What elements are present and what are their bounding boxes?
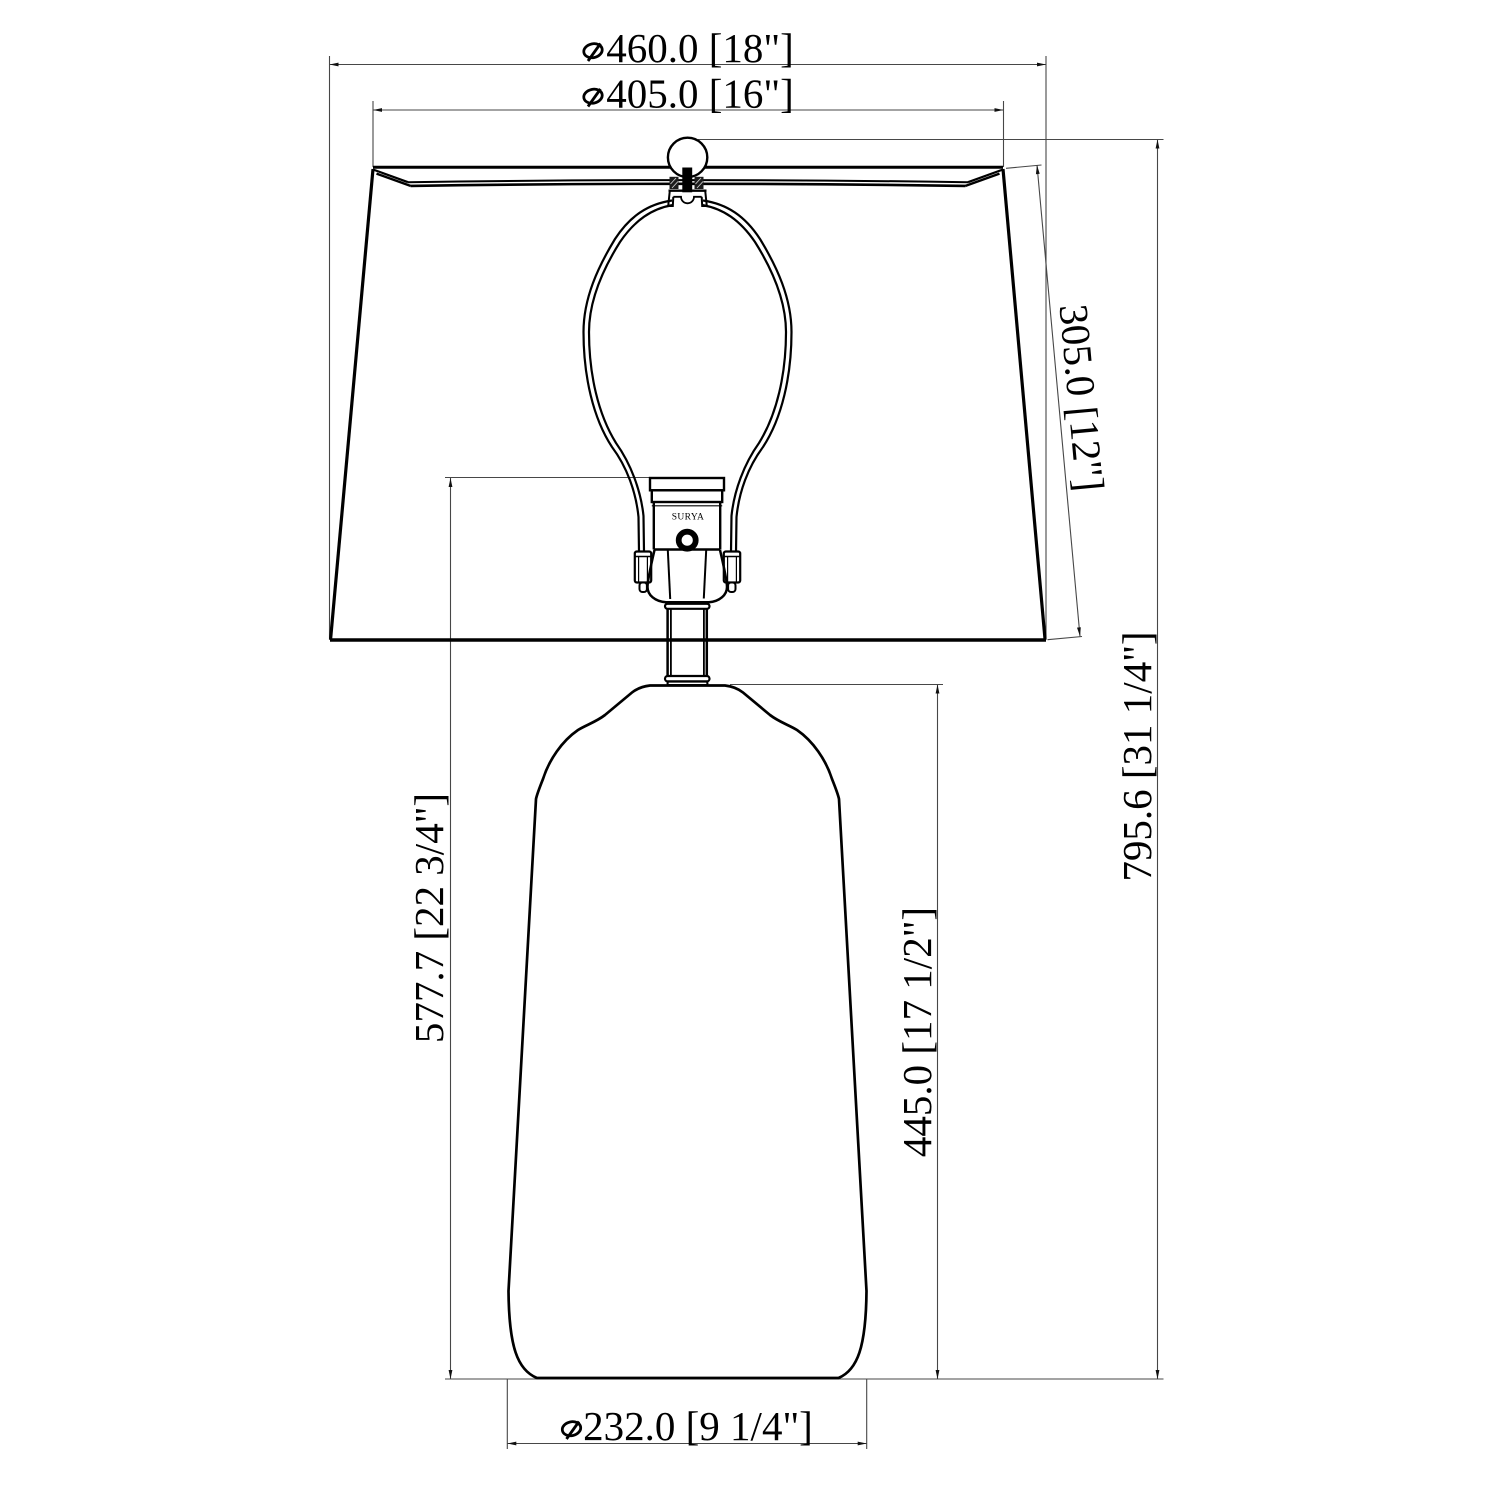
svg-text:460.0 [18"]: 460.0 [18"]: [606, 25, 794, 71]
svg-text:577.7 [22 3/4"]: 577.7 [22 3/4"]: [406, 793, 452, 1043]
svg-text:405.0 [16"]: 405.0 [16"]: [606, 71, 794, 117]
svg-text:SURYA: SURYA: [672, 513, 705, 523]
svg-text:795.6 [31 1/4"]: 795.6 [31 1/4"]: [1114, 631, 1160, 881]
svg-text:232.0 [9 1/4"]: 232.0 [9 1/4"]: [583, 1403, 813, 1449]
svg-text:445.0 [17 1/2"]: 445.0 [17 1/2"]: [894, 907, 940, 1157]
